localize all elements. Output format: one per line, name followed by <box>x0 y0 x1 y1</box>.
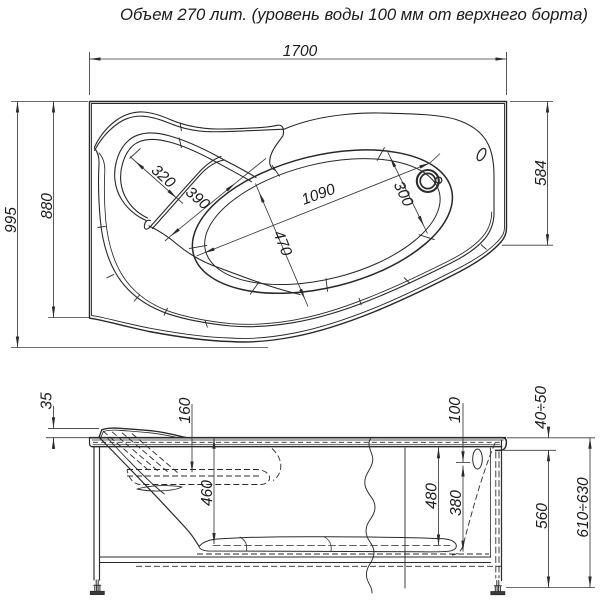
svg-text:584: 584 <box>533 160 550 186</box>
svg-text:35: 35 <box>39 392 56 410</box>
svg-text:Объем 270 лит. (уровень воды 1: Объем 270 лит. (уровень воды 100 мм от в… <box>120 6 588 24</box>
svg-text:160: 160 <box>177 397 194 423</box>
svg-text:100: 100 <box>447 397 464 423</box>
svg-text:880: 880 <box>39 193 56 219</box>
svg-text:480: 480 <box>424 483 441 509</box>
svg-text:610÷630: 610÷630 <box>575 477 592 538</box>
svg-text:995: 995 <box>3 207 20 233</box>
svg-text:40÷50: 40÷50 <box>533 386 550 429</box>
svg-text:380: 380 <box>448 490 465 516</box>
svg-text:460: 460 <box>199 480 216 506</box>
svg-text:560: 560 <box>534 503 551 529</box>
svg-text:1700: 1700 <box>283 43 318 60</box>
